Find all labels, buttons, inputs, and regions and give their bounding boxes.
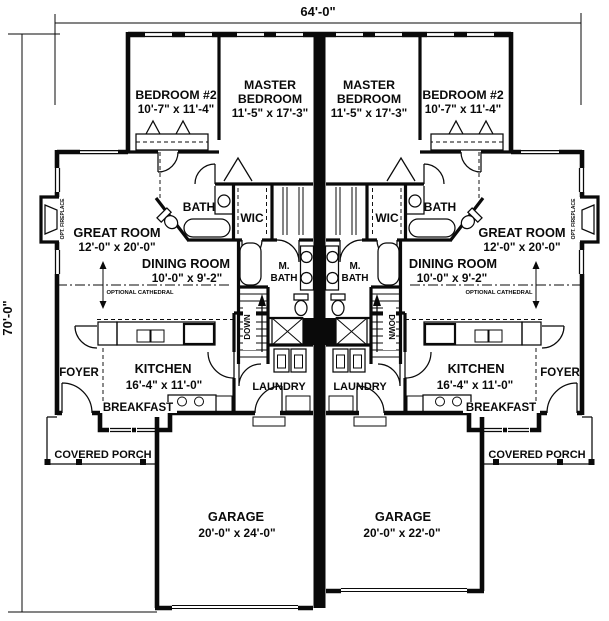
label-bath-right: BATH bbox=[424, 200, 456, 214]
label-mbath2-left: BATH bbox=[270, 273, 297, 284]
label-dining-size-left: 10'-0" x 9'-2" bbox=[152, 271, 223, 285]
label-garage-size-right: 20'-0" x 22'-0" bbox=[363, 526, 440, 540]
label-bedroom2-size-right: 10'-7" x 11'-4" bbox=[425, 102, 501, 116]
labels: 64'-0" 70'-0" BEDROOM #2 10'-7" x 11'-4"… bbox=[0, 4, 586, 540]
label-garage-left: GARAGE bbox=[208, 509, 265, 524]
floor-plan-drawing: 64'-0" 70'-0" BEDROOM #2 10'-7" x 11'-4"… bbox=[0, 0, 609, 621]
label-bedroom2-right: BEDROOM #2 bbox=[422, 88, 503, 102]
label-porch-right: COVERED PORCH bbox=[488, 449, 585, 461]
overall-depth-label: 70'-0" bbox=[0, 300, 15, 335]
label-master-size-right: 11'-5" x 17'-3" bbox=[331, 106, 407, 120]
label-wic-right: WIC bbox=[375, 211, 399, 225]
label-foyer-right: FOYER bbox=[540, 367, 580, 379]
label-porch-left: COVERED PORCH bbox=[54, 449, 151, 461]
label-dining-left: DINING ROOM bbox=[142, 256, 230, 271]
label-dining-right: DINING ROOM bbox=[409, 256, 497, 271]
label-cathedral-right: OPTIONAL CATHEDRAL bbox=[465, 290, 533, 296]
label-master-size-left: 11'-5" x 17'-3" bbox=[232, 106, 308, 120]
label-master-right: MASTER bbox=[343, 78, 395, 92]
label-bedroom2-size-left: 10'-7" x 11'-4" bbox=[138, 102, 214, 116]
label-kitchen-size-right: 16'-4" x 11'-0" bbox=[437, 378, 513, 392]
label-cathedral-left: OPTIONAL CATHEDRAL bbox=[106, 290, 174, 296]
label-great-room-right: GREAT ROOM bbox=[478, 225, 565, 240]
label-great-room-left: GREAT ROOM bbox=[73, 225, 160, 240]
label-down-left: DOWN bbox=[243, 314, 252, 340]
label-master2-left: BEDROOM bbox=[238, 92, 302, 106]
floor-plan-sheet: 64'-0" 70'-0" BEDROOM #2 10'-7" x 11'-4"… bbox=[0, 0, 609, 621]
label-kitchen-left: KITCHEN bbox=[135, 361, 192, 376]
label-kitchen-right: KITCHEN bbox=[448, 361, 505, 376]
label-master2-right: BEDROOM bbox=[337, 92, 401, 106]
label-kitchen-size-left: 16'-4" x 11'-0" bbox=[126, 378, 202, 392]
label-fireplace-left: OPT. FIREPLACE bbox=[60, 198, 66, 240]
overall-width-label: 64'-0" bbox=[300, 4, 335, 19]
label-mbath1-right: M. bbox=[349, 261, 360, 272]
label-mbath2-right: BATH bbox=[341, 273, 368, 284]
label-great-room-size-right: 12'-0" x 20'-0" bbox=[483, 240, 560, 254]
label-wic-left: WIC bbox=[240, 211, 264, 225]
label-laundry-left: LAUNDRY bbox=[252, 381, 306, 393]
label-master-left: MASTER bbox=[244, 78, 296, 92]
label-foyer-left: FOYER bbox=[59, 367, 99, 379]
label-bath-left: BATH bbox=[183, 200, 215, 214]
label-laundry-right: LAUNDRY bbox=[333, 381, 387, 393]
label-bedroom2-left: BEDROOM #2 bbox=[135, 88, 216, 102]
label-breakfast-right: BREAKFAST bbox=[466, 402, 536, 414]
label-garage-size-left: 20'-0" x 24'-0" bbox=[198, 526, 275, 540]
label-breakfast-left: BREAKFAST bbox=[103, 402, 173, 414]
label-fireplace-right: OPT. FIREPLACE bbox=[571, 198, 577, 240]
label-mbath1-left: M. bbox=[278, 261, 289, 272]
label-garage-right: GARAGE bbox=[375, 509, 432, 524]
label-great-room-size-left: 12'-0" x 20'-0" bbox=[78, 240, 155, 254]
garage-right-walls bbox=[326, 417, 484, 596]
label-down-right: DOWN bbox=[387, 314, 396, 340]
label-dining-size-right: 10'-0" x 9'-2" bbox=[417, 271, 488, 285]
